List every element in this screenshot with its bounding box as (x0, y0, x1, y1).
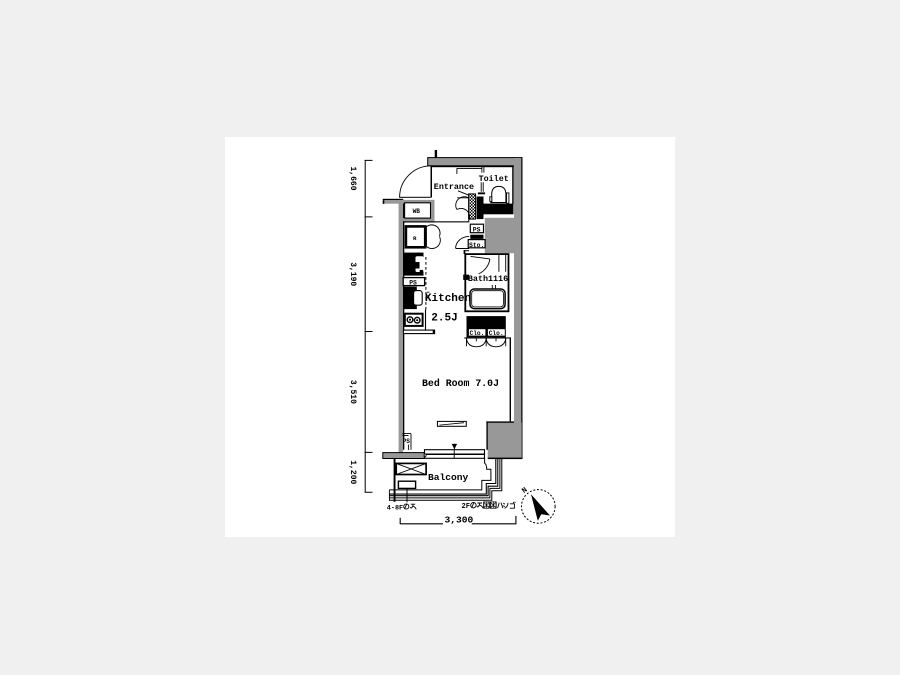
svg-text:WB: WB (413, 208, 421, 215)
svg-text:Clo.: Clo. (489, 330, 504, 337)
svg-text:R: R (413, 235, 417, 242)
svg-text:PS: PS (403, 438, 411, 445)
svg-text:PS: PS (409, 279, 417, 286)
svg-text:Bed Room 7.0J: Bed Room 7.0J (422, 378, 499, 389)
svg-text:3,300: 3,300 (445, 515, 474, 526)
svg-text:3,510: 3,510 (348, 380, 357, 404)
svg-text:Clo.: Clo. (470, 330, 485, 337)
svg-text:1,200: 1,200 (348, 460, 357, 484)
svg-text:4-8F: 4-8F (387, 505, 403, 513)
svg-text:Entrance: Entrance (434, 182, 474, 192)
svg-text:Balcony: Balcony (428, 472, 469, 483)
svg-text:2.5J: 2.5J (431, 312, 457, 324)
svg-text:3,190: 3,190 (348, 262, 357, 286)
svg-text:Sto.: Sto. (469, 242, 484, 249)
svg-text:PS: PS (473, 227, 481, 234)
svg-text:2F: 2F (462, 503, 470, 511)
svg-text:1,660: 1,660 (348, 167, 357, 191)
svg-text:Kitchen: Kitchen (425, 293, 471, 305)
svg-text:Bath1116: Bath1116 (468, 274, 508, 284)
